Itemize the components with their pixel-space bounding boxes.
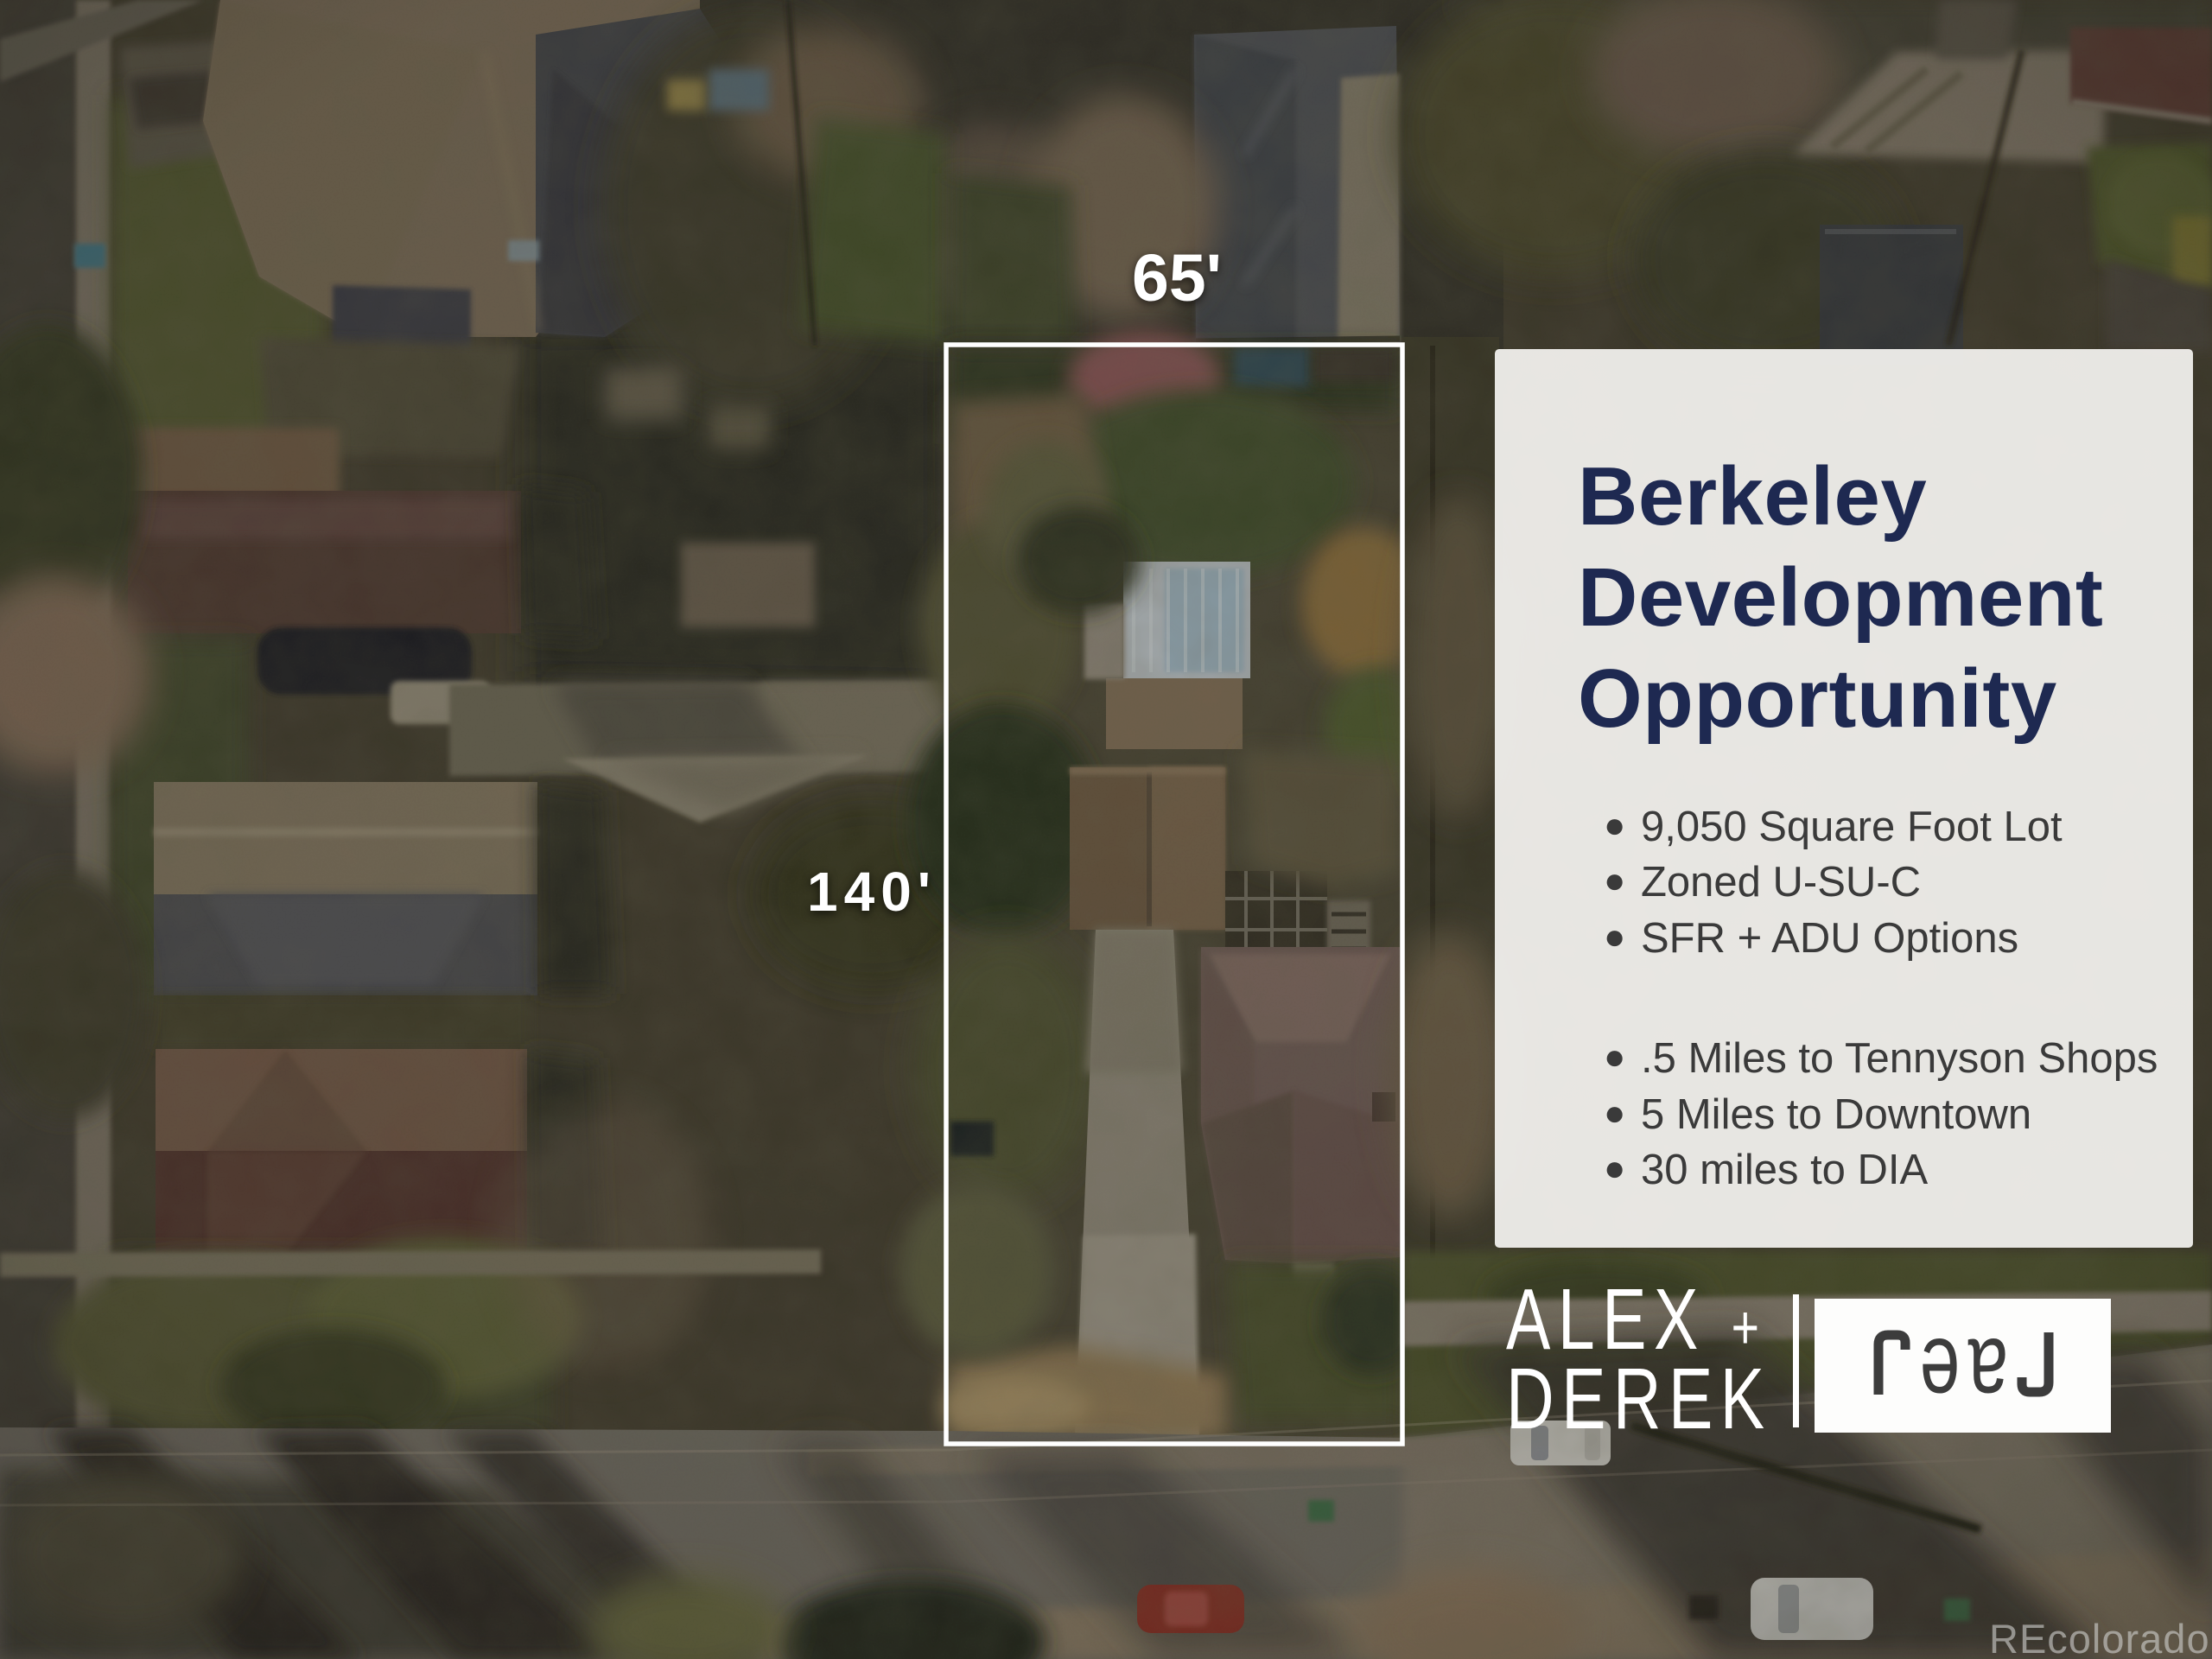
svg-text:a: a <box>1967 1318 2008 1429</box>
svg-text:e: e <box>1920 1318 1960 1429</box>
